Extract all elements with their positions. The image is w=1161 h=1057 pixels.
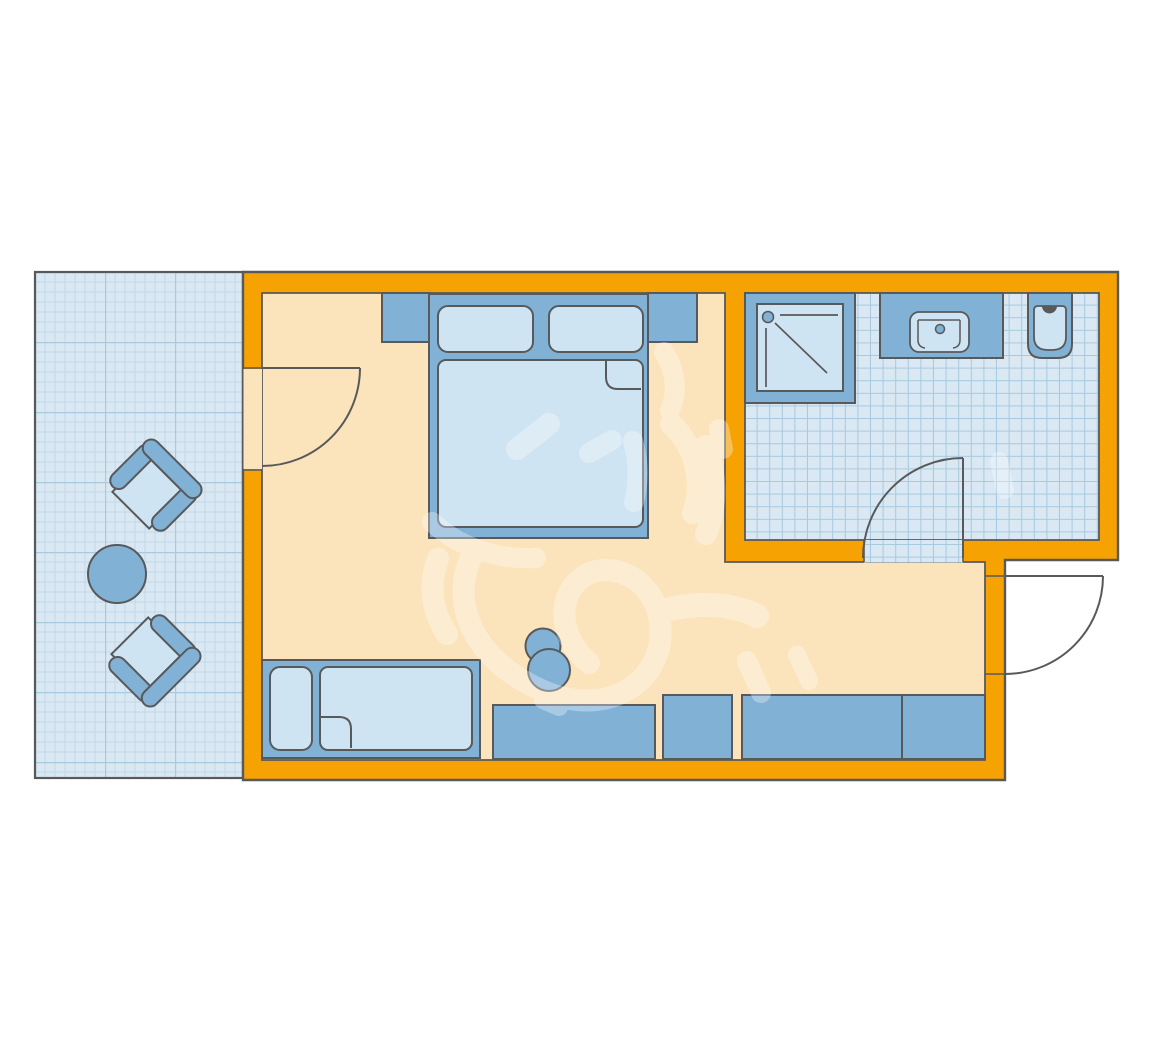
balcony-floor xyxy=(35,272,243,778)
balcony xyxy=(35,272,243,778)
doodle-dash xyxy=(747,661,761,693)
cabinet xyxy=(663,695,732,759)
toilet xyxy=(1028,293,1072,358)
doodle-dash xyxy=(543,700,559,707)
floor-plan-drawing xyxy=(0,0,1161,1057)
pillow-left xyxy=(438,306,533,352)
doodle-ray xyxy=(719,429,723,449)
nightstand-left xyxy=(382,293,430,342)
doodle-dash xyxy=(797,655,809,681)
shower xyxy=(745,293,855,403)
single-bed-pillow xyxy=(270,667,312,750)
single-bed-mattress xyxy=(320,667,472,750)
entrance-door-swing xyxy=(1005,576,1103,674)
doodle-ray xyxy=(706,446,714,534)
doodle-ray xyxy=(633,441,638,502)
faucet xyxy=(936,325,945,334)
balcony-door-threshold xyxy=(244,369,263,469)
desk xyxy=(493,705,655,759)
doodle-dash xyxy=(660,605,757,616)
sink xyxy=(880,293,1003,358)
entrance-door xyxy=(1005,576,1103,674)
doodle-ray xyxy=(664,352,675,410)
pillow-right xyxy=(549,306,643,352)
doodle-ray xyxy=(589,440,612,453)
shower-head xyxy=(763,312,774,323)
bathroom-door-threshold xyxy=(864,540,963,563)
floor-plan-page xyxy=(0,0,1161,1057)
nightstand-right xyxy=(648,293,697,342)
doodle-dash xyxy=(999,461,1005,490)
cabinet-right xyxy=(902,695,985,759)
wardrobe xyxy=(742,695,902,759)
round-table xyxy=(88,545,146,603)
